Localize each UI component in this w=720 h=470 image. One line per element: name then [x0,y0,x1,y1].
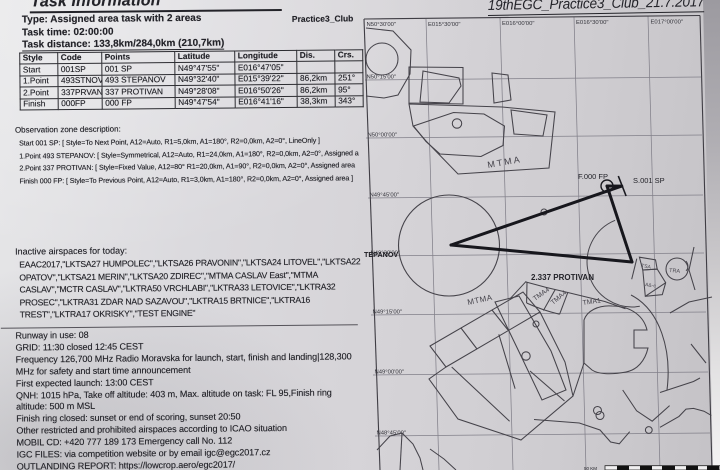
svg-text:TRA: TRA [669,268,681,275]
svg-text:TMA1: TMA1 [582,297,601,306]
svg-text:2.337 PROTIVAN: 2.337 PROTIVAN [531,273,594,282]
svg-text:S.001 SP: S.001 SP [633,176,665,185]
svg-text:E017°00'00": E017°00'00" [651,20,683,26]
svg-text:N50°30'00": N50°30'00" [367,22,396,28]
svg-text:E015°30'00": E015°30'00" [428,22,460,28]
svg-text:E016°30'00": E016°30'00" [576,20,608,26]
svg-text:N49°00'00": N49°00'00" [375,370,404,376]
svg-text:N50°00'00": N50°00'00" [368,133,397,139]
svg-text:MTMA: MTMA [467,293,494,307]
svg-text:TMA4: TMA4 [532,286,551,302]
svg-text:N49°15'00": N49°15'00" [373,310,402,316]
svg-text:F.000 FP: F.000 FP [578,172,608,181]
svg-text:A&-c: A&-c [645,282,657,290]
svg-text:E016°00'00": E016°00'00" [502,21,534,27]
svg-text:TEPANOV: TEPANOV [364,250,398,259]
svg-text:N49°45'00": N49°45'00" [370,193,399,199]
svg-text:50 KM: 50 KM [584,466,597,470]
